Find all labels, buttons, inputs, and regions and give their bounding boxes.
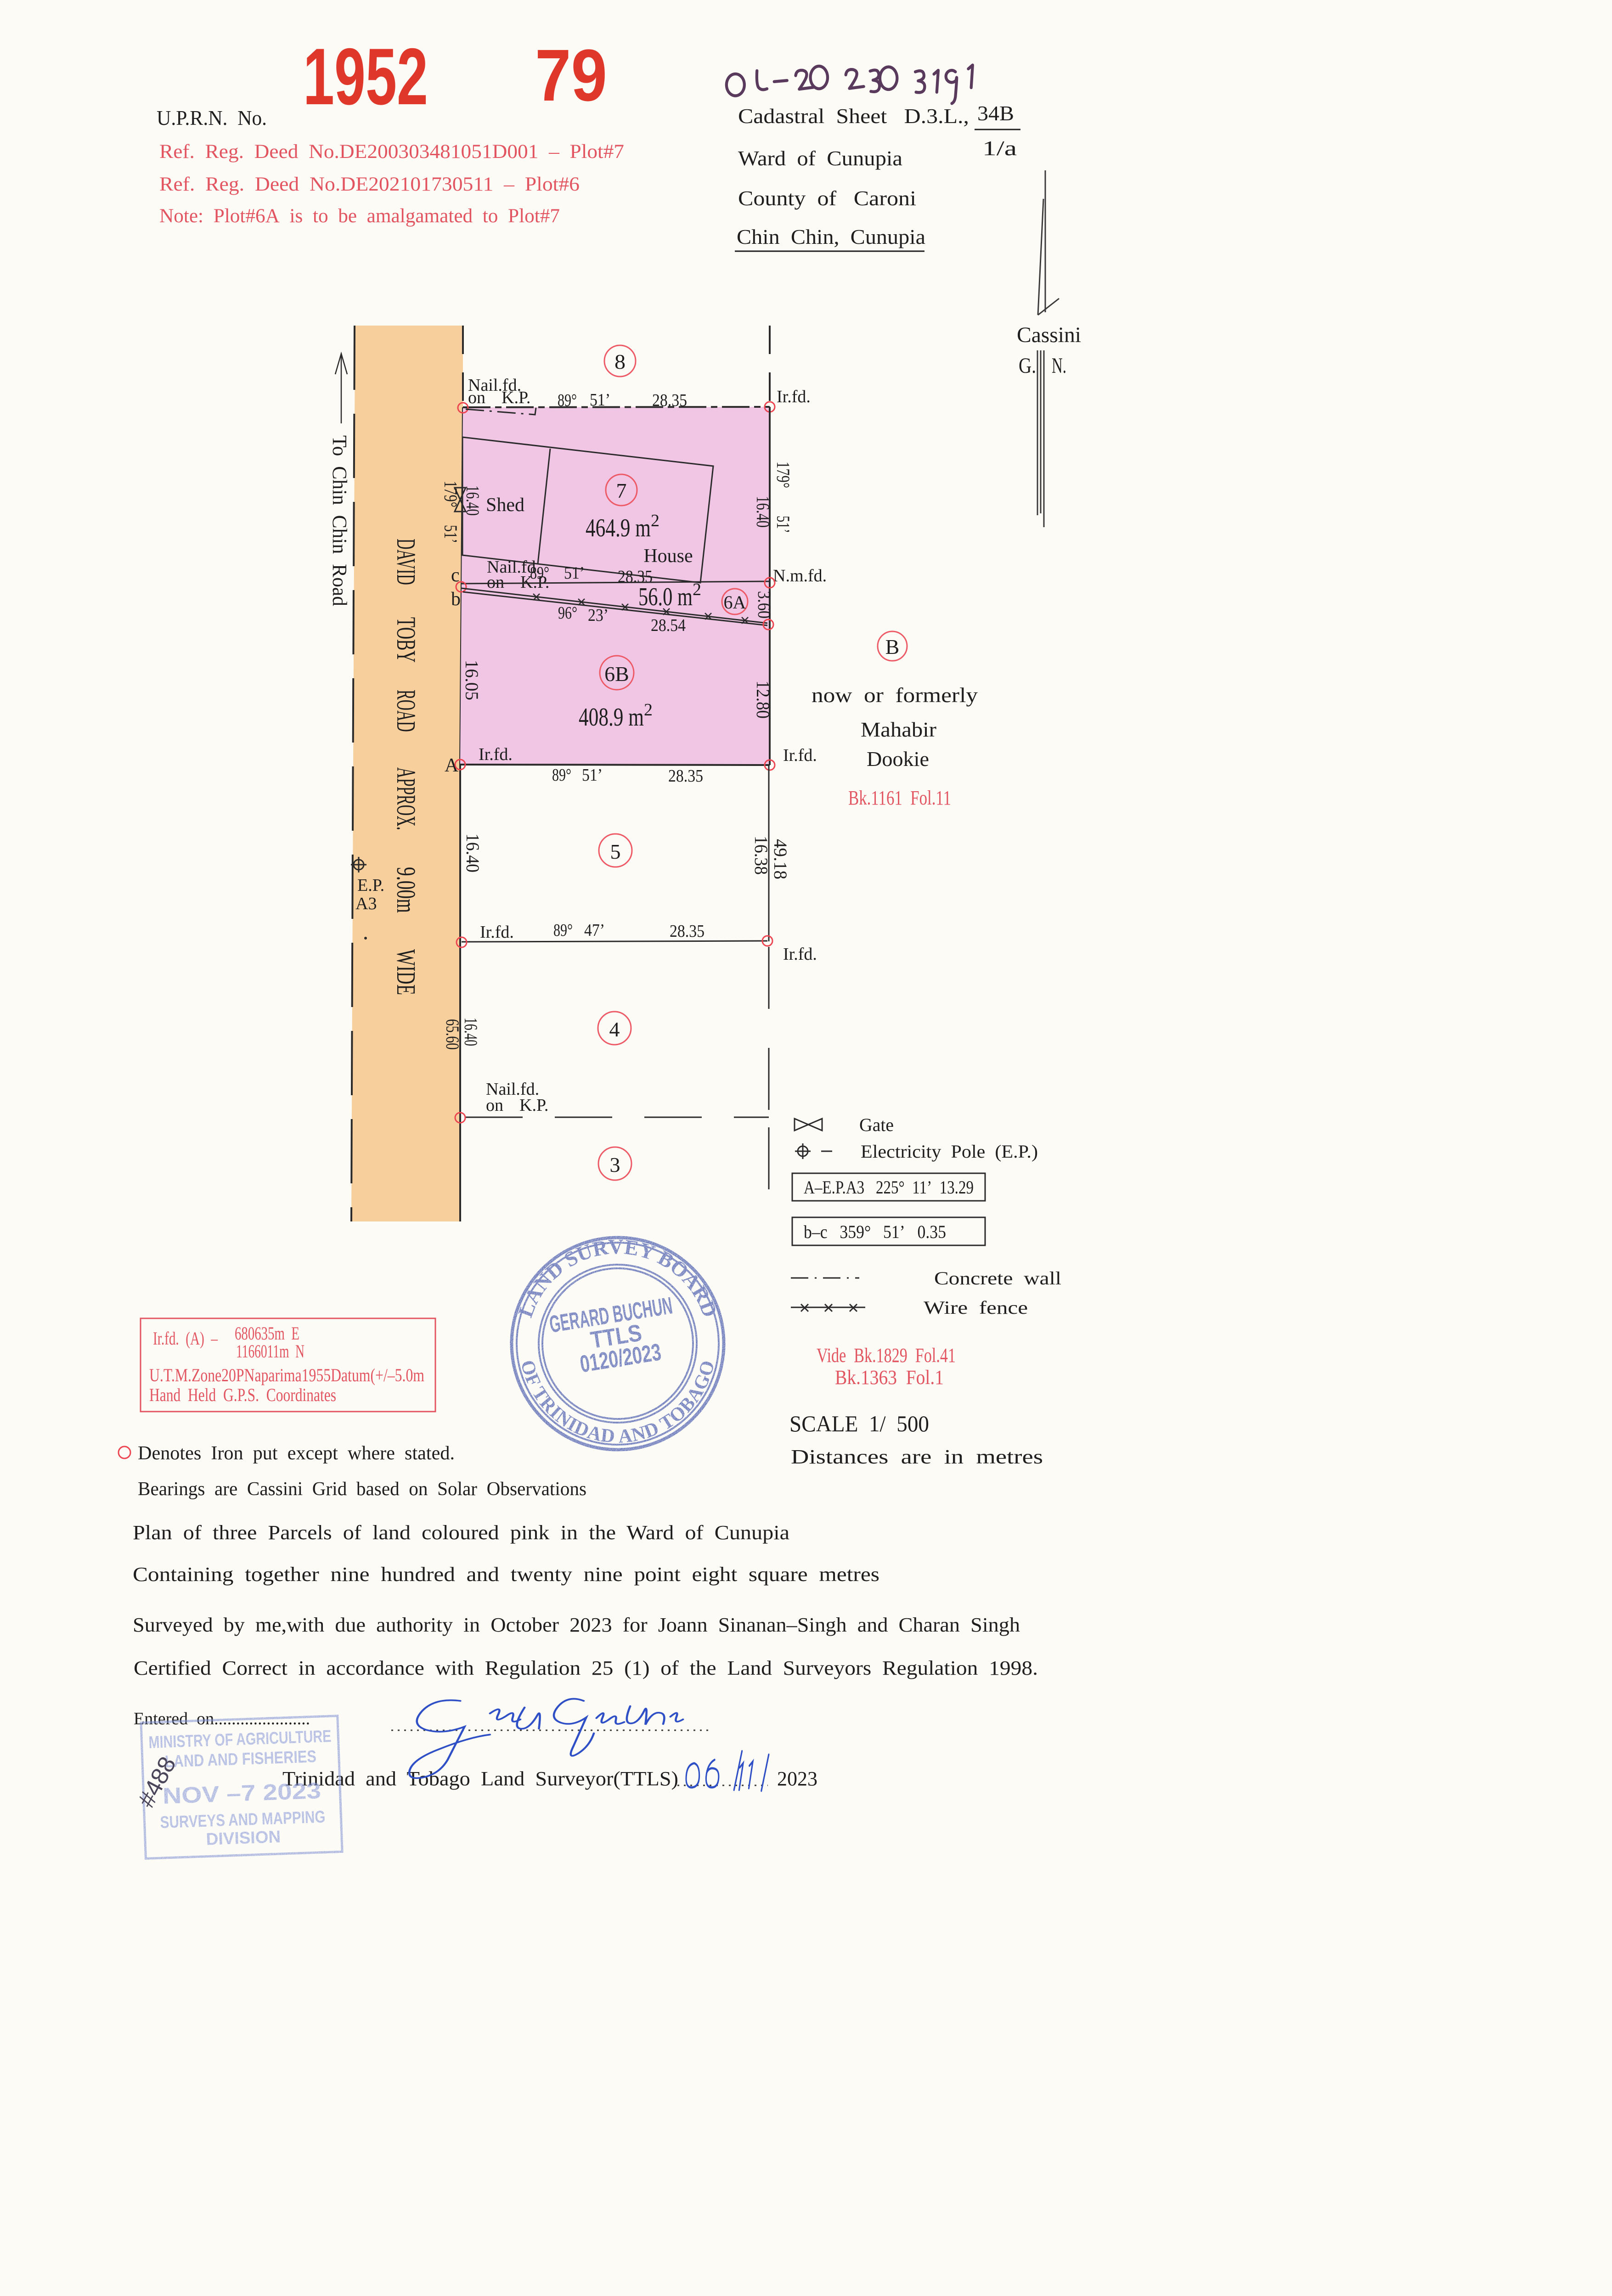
svg-text:28.54: 28.54 bbox=[651, 616, 686, 635]
svg-text:79: 79 bbox=[535, 34, 607, 116]
svg-text:Surveyed by me,with due au: Surveyed by me,with due authority in Oct… bbox=[133, 1614, 1020, 1636]
svg-text:179°: 179° bbox=[773, 461, 794, 488]
svg-text:DAVID: DAVID bbox=[391, 539, 421, 585]
svg-text:APPROX.: APPROX. bbox=[391, 767, 421, 830]
svg-text:SCALE 1/ 500: SCALE 1/ 500 bbox=[789, 1411, 929, 1436]
svg-text:3.60: 3.60 bbox=[754, 591, 775, 619]
svg-text:WIDE: WIDE bbox=[391, 949, 421, 995]
svg-text:TOBY: TOBY bbox=[391, 617, 421, 663]
svg-text:G.: G. bbox=[1019, 354, 1036, 378]
svg-text:28.35: 28.35 bbox=[670, 922, 705, 941]
svg-text:Ir.fd.: Ir.fd. bbox=[783, 746, 817, 765]
svg-text:5: 5 bbox=[610, 840, 621, 863]
svg-text:U.P.R.N. No.: U.P.R.N. No. bbox=[157, 106, 267, 129]
svg-text:County of Caroni: County of Caroni bbox=[738, 186, 916, 210]
svg-text:12.80: 12.80 bbox=[753, 681, 773, 719]
svg-text:Distances are in metres: Distances are in metres bbox=[791, 1446, 1043, 1468]
svg-text:65.60: 65.60 bbox=[442, 1019, 463, 1050]
svg-text:1166011m N: 1166011m N bbox=[236, 1341, 304, 1362]
svg-text:Gate: Gate bbox=[859, 1114, 894, 1135]
svg-text:Bk.1161 Fol.11: Bk.1161 Fol.11 bbox=[848, 787, 951, 809]
svg-text:56.0 m2: 56.0 m2 bbox=[638, 580, 701, 611]
svg-text:ROAD: ROAD bbox=[391, 690, 421, 732]
svg-text:Ward of Cunupia: Ward of Cunupia bbox=[738, 146, 902, 170]
svg-text:DIVISION: DIVISION bbox=[206, 1827, 281, 1849]
svg-text:on K.P.: on K.P. bbox=[468, 388, 530, 407]
svg-text:3: 3 bbox=[610, 1153, 620, 1176]
svg-text:7: 7 bbox=[616, 479, 627, 502]
svg-text:0120/2023: 0120/2023 bbox=[578, 1339, 663, 1378]
svg-text:16.40: 16.40 bbox=[462, 485, 483, 516]
svg-text:Ref. Reg. Deed No.DE2021017: Ref. Reg. Deed No.DE202101730511 – Plot#… bbox=[159, 174, 580, 195]
svg-text:Denotes Iron put except wh: Denotes Iron put except where stated. bbox=[138, 1443, 455, 1464]
svg-text:1/a: 1/a bbox=[982, 136, 1017, 160]
svg-text:51’: 51’ bbox=[440, 525, 461, 543]
svg-text:Note: Plot#6A is to be am: Note: Plot#6A is to be amalgamated to Pl… bbox=[159, 205, 560, 227]
svg-text:96°: 96° bbox=[558, 603, 577, 623]
svg-text:B: B bbox=[885, 635, 900, 658]
svg-text:Plan of three Parcels of: Plan of three Parcels of land coloured p… bbox=[133, 1521, 789, 1544]
svg-text:23’: 23’ bbox=[588, 606, 609, 625]
svg-text:N.m.fd.: N.m.fd. bbox=[773, 566, 827, 585]
svg-text:on K.P.: on K.P. bbox=[486, 1096, 548, 1115]
svg-text:Concrete wall: Concrete wall bbox=[934, 1268, 1061, 1289]
svg-text:179°: 179° bbox=[440, 481, 461, 507]
svg-text:89°: 89° bbox=[530, 563, 549, 583]
svg-text:1952: 1952 bbox=[303, 32, 428, 122]
svg-text:A–E.P.A3 225° 11’ 13.29: A–E.P.A3 225° 11’ 13.29 bbox=[804, 1177, 974, 1198]
svg-text:Certified Correct in accord: Certified Correct in accordance with Reg… bbox=[134, 1657, 1038, 1679]
svg-text:4: 4 bbox=[609, 1018, 620, 1041]
svg-text:Trinidad and Tobago Land S: Trinidad and Tobago Land Surveyor(TTLS) bbox=[282, 1767, 678, 1790]
svg-text:6A: 6A bbox=[724, 592, 746, 613]
svg-text:Bearings are Cassini Grid: Bearings are Cassini Grid based on Solar… bbox=[138, 1479, 586, 1500]
svg-text:6B: 6B bbox=[604, 662, 629, 686]
svg-text:A3: A3 bbox=[355, 894, 377, 913]
svg-text:NOV –7 2023: NOV –7 2023 bbox=[162, 1778, 321, 1809]
svg-text:Bk.1363 Fol.1: Bk.1363 Fol.1 bbox=[835, 1366, 944, 1389]
svg-text:To Chin Chin Road: To Chin Chin Road bbox=[328, 435, 351, 606]
svg-text:Vide Bk.1829 Fol.41: Vide Bk.1829 Fol.41 bbox=[817, 1344, 956, 1367]
svg-text:51’: 51’ bbox=[582, 765, 603, 785]
svg-text:Hand Held G.P.S. Coordinate: Hand Held G.P.S. Coordinates bbox=[149, 1384, 336, 1405]
svg-text:89°: 89° bbox=[553, 921, 573, 940]
svg-text:Electricity Pole (E.P.): Electricity Pole (E.P.) bbox=[861, 1141, 1038, 1162]
svg-text:51’: 51’ bbox=[773, 516, 794, 533]
svg-text:b–c 359° 51’ 0.35: b–c 359° 51’ 0.35 bbox=[804, 1221, 946, 1242]
svg-text:N.: N. bbox=[1052, 354, 1066, 378]
svg-text:Cassini: Cassini bbox=[1017, 323, 1081, 347]
svg-text:16.40: 16.40 bbox=[753, 496, 773, 528]
svg-text:16.40: 16.40 bbox=[461, 1018, 481, 1046]
svg-text:Ir.fd. (A) –: Ir.fd. (A) – bbox=[153, 1328, 218, 1349]
svg-text:408.9 m2: 408.9 m2 bbox=[579, 700, 653, 732]
svg-text:16.40: 16.40 bbox=[462, 833, 483, 872]
svg-text:8: 8 bbox=[614, 350, 626, 373]
svg-text:Ir.fd.: Ir.fd. bbox=[479, 745, 513, 764]
svg-text:9.00m: 9.00m bbox=[391, 867, 421, 913]
svg-text:Containing together nine hu: Containing together nine hundred and twe… bbox=[133, 1563, 879, 1586]
svg-text:Ir.fd.: Ir.fd. bbox=[783, 945, 817, 964]
svg-text:now or formerly: now or formerly bbox=[812, 683, 978, 707]
svg-text:A: A bbox=[445, 755, 459, 776]
svg-text:16.05: 16.05 bbox=[462, 660, 482, 700]
svg-text:House: House bbox=[643, 546, 693, 567]
svg-text:U.T.M.Zone20PNaparima1955Datum: U.T.M.Zone20PNaparima1955Datum(+/–5.0m bbox=[149, 1365, 424, 1385]
svg-text:E.P.: E.P. bbox=[357, 876, 384, 895]
svg-text:Cadastral Sheet D.3.L.,: Cadastral Sheet D.3.L., bbox=[738, 104, 969, 128]
svg-text:28.35: 28.35 bbox=[668, 766, 703, 786]
svg-text:Chin Chin, Cunupia: Chin Chin, Cunupia bbox=[737, 225, 925, 248]
svg-text:Wire fence: Wire fence bbox=[924, 1297, 1028, 1318]
svg-text:Ref. Reg. Deed No.DE2003034: Ref. Reg. Deed No.DE200303481051D001 – P… bbox=[159, 141, 624, 163]
svg-text:Dookie: Dookie bbox=[867, 747, 929, 771]
svg-text:2023: 2023 bbox=[777, 1767, 817, 1790]
svg-text:89°: 89° bbox=[552, 765, 571, 785]
svg-text:34B: 34B bbox=[977, 101, 1014, 125]
svg-text:Ir.fd.: Ir.fd. bbox=[777, 387, 811, 406]
svg-text:49.18: 49.18 bbox=[770, 839, 791, 879]
svg-text:47’: 47’ bbox=[584, 921, 605, 940]
svg-text:51’: 51’ bbox=[564, 563, 585, 583]
svg-text:464.9 m2: 464.9 m2 bbox=[586, 511, 659, 542]
svg-text:Ir.fd.: Ir.fd. bbox=[480, 923, 514, 942]
svg-text:Shed: Shed bbox=[486, 495, 524, 516]
svg-text:Mahabir: Mahabir bbox=[861, 718, 936, 741]
